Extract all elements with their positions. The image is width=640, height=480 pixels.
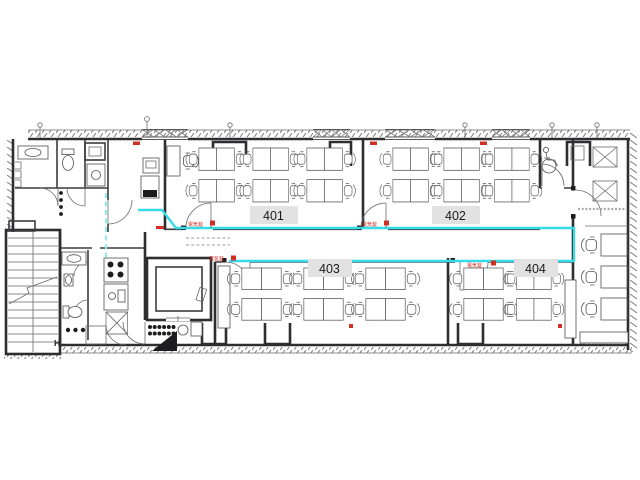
wall-desk bbox=[167, 146, 180, 176]
urinal-icon bbox=[64, 274, 73, 286]
desk bbox=[601, 234, 627, 256]
desk-cluster bbox=[482, 148, 542, 202]
desk-cluster bbox=[431, 148, 492, 202]
wheelchair-icon bbox=[542, 147, 558, 173]
hall-cabinet bbox=[191, 322, 202, 336]
red-door-marker bbox=[558, 324, 562, 328]
sink-counter-icon bbox=[62, 252, 86, 265]
floor-plan-drawing: H bbox=[0, 0, 640, 480]
coat-hooks bbox=[59, 191, 63, 216]
kitchen-sink-icon bbox=[104, 284, 128, 310]
copier-icon bbox=[143, 158, 159, 173]
chair-icon bbox=[581, 269, 596, 285]
desk-cluster bbox=[240, 148, 301, 202]
stove-icon bbox=[104, 258, 128, 282]
desk-cluster bbox=[186, 148, 247, 202]
floor-plan-page: H bbox=[0, 0, 640, 480]
mailboxes bbox=[148, 325, 176, 336]
chair-icon bbox=[581, 237, 596, 253]
printer-base bbox=[143, 190, 157, 197]
room-label-404: 404 bbox=[525, 262, 546, 276]
low-cabinet bbox=[580, 332, 628, 343]
right-wall-hatch bbox=[630, 133, 637, 352]
door-lock-marker bbox=[156, 226, 164, 229]
pipe-shaft bbox=[85, 143, 105, 160]
overhead-cabinet-dashed bbox=[186, 238, 230, 245]
staircase bbox=[6, 221, 60, 354]
door-lock-marker bbox=[491, 261, 496, 266]
kitchen-block: H bbox=[54, 252, 128, 348]
slop-sink-icon bbox=[87, 164, 105, 186]
chair-icon bbox=[581, 301, 596, 317]
desk-cluster bbox=[380, 148, 441, 202]
door-entry bbox=[106, 325, 126, 345]
cabinet bbox=[565, 280, 576, 338]
door-lock-marker bbox=[384, 221, 389, 226]
red-door-marker bbox=[349, 324, 353, 328]
wall-fixtures bbox=[15, 162, 21, 187]
red-wall-tick bbox=[370, 142, 377, 146]
red-wall-tick bbox=[133, 142, 140, 146]
column-alcove bbox=[458, 323, 483, 344]
column-alcove bbox=[265, 323, 290, 344]
room-label-401: 401 bbox=[263, 209, 284, 223]
entry-vestibule bbox=[86, 326, 106, 344]
room-404 bbox=[449, 268, 576, 338]
door-lock-marker bbox=[231, 256, 236, 261]
elevator-car bbox=[156, 267, 202, 311]
floor-dots bbox=[66, 328, 85, 332]
duct-shaft-icon bbox=[106, 312, 128, 334]
door-toilet bbox=[67, 188, 85, 206]
desk-cluster bbox=[294, 148, 355, 202]
toilet-icon bbox=[63, 306, 82, 318]
door-lock-note: 電気錠 bbox=[209, 256, 224, 263]
room-401 bbox=[167, 146, 355, 202]
pipe-shaft-inner bbox=[89, 147, 101, 156]
equipment-unit-icon bbox=[593, 181, 617, 201]
door-vestibule bbox=[108, 200, 132, 224]
door-lock-note: 電気錠 bbox=[188, 221, 203, 228]
room-402 bbox=[380, 148, 542, 202]
door-lock-note: 電気錠 bbox=[467, 262, 482, 269]
room-label-403: 403 bbox=[319, 262, 340, 276]
door-east-room bbox=[575, 190, 601, 216]
sink-counter-icon bbox=[18, 146, 48, 159]
door-accessible-wc bbox=[542, 164, 564, 186]
red-wall-tick bbox=[480, 142, 487, 146]
stool-icon bbox=[178, 325, 188, 335]
desk-cluster bbox=[351, 268, 419, 320]
desk bbox=[601, 298, 627, 320]
copier-corner bbox=[141, 158, 159, 198]
room-label-402: 402 bbox=[445, 209, 466, 223]
desk bbox=[601, 266, 627, 288]
door-lock-marker bbox=[210, 221, 215, 226]
bottom-wall-hatch bbox=[60, 347, 632, 353]
accessible-wc bbox=[542, 147, 558, 173]
room-labels: 401 402 403 404 bbox=[250, 206, 558, 277]
door-lock-note: 電気錠 bbox=[362, 221, 377, 228]
door-washroom bbox=[40, 188, 58, 206]
desk-cluster bbox=[227, 268, 295, 320]
equipment-unit-icon bbox=[593, 147, 617, 167]
east-room bbox=[578, 147, 628, 343]
toilet-icon bbox=[62, 149, 74, 171]
security-line bbox=[138, 210, 574, 261]
